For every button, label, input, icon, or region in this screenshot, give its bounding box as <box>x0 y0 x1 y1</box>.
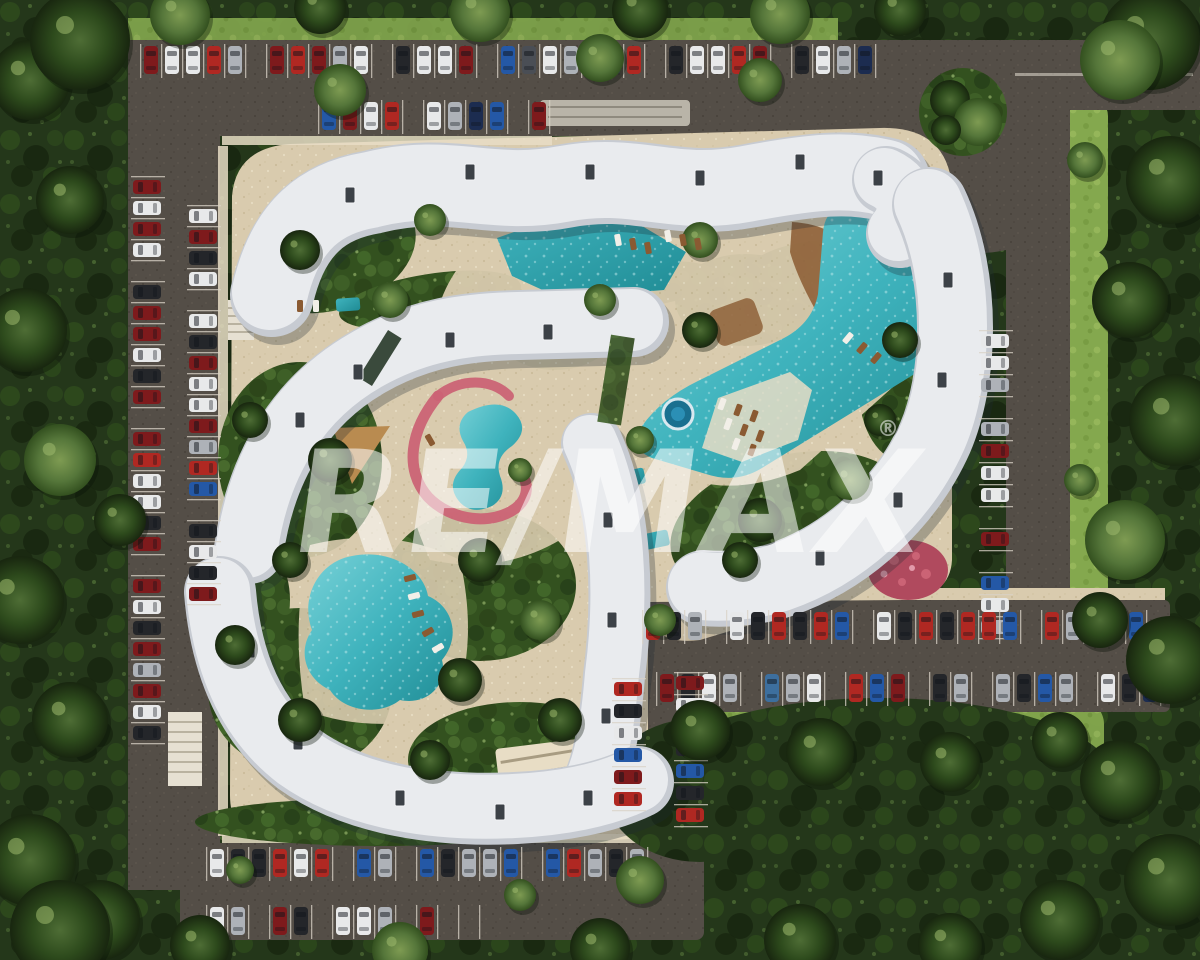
stall-line <box>131 638 165 639</box>
car-rear-window <box>879 632 889 636</box>
car-windshield <box>138 602 143 612</box>
car-rear-window <box>209 232 213 242</box>
car-windshield <box>317 854 327 859</box>
roof-skylight <box>495 804 505 820</box>
stall-line <box>416 847 417 881</box>
tree <box>94 494 146 546</box>
stall-line <box>131 491 165 492</box>
car-windshield <box>851 679 861 684</box>
stall-line <box>612 788 646 789</box>
car-windshield <box>963 617 973 622</box>
stall-line <box>434 44 435 78</box>
stall-line <box>740 672 741 706</box>
roof-skylight <box>873 170 883 186</box>
car-windshield <box>167 51 177 56</box>
car-windshield <box>816 617 826 622</box>
car-rear-window <box>634 794 638 804</box>
car-windshield <box>681 766 686 776</box>
stall-line <box>187 247 221 248</box>
roof-skylight <box>543 324 553 340</box>
stall-line <box>187 478 221 479</box>
car-windshield <box>338 912 348 917</box>
car-windshield <box>681 678 686 688</box>
car-windshield <box>398 51 408 56</box>
car-windshield <box>138 371 143 381</box>
car-rear-window <box>696 766 700 776</box>
stall-line <box>381 100 382 134</box>
stall-line <box>131 680 165 681</box>
stall-line <box>761 672 762 706</box>
stall-line <box>187 436 221 437</box>
stall-line <box>833 44 834 78</box>
tree-highlight <box>804 736 816 748</box>
car-windshield <box>690 617 700 622</box>
west-stairs <box>168 712 202 786</box>
roundabout-island <box>919 68 1007 156</box>
tree <box>1064 464 1096 496</box>
car-rear-window <box>998 694 1008 698</box>
car-windshield <box>732 617 742 622</box>
car-rear-window <box>809 694 819 698</box>
car-rear-window <box>1040 694 1050 698</box>
car-windshield <box>293 51 303 56</box>
car-windshield <box>429 107 439 112</box>
tree-highlight <box>592 292 598 298</box>
car-rear-window <box>935 694 945 698</box>
tree <box>410 740 450 780</box>
car-rear-window <box>629 66 639 70</box>
car-windshield <box>380 912 390 917</box>
car-rear-window <box>569 869 579 873</box>
car-rear-window <box>696 678 700 688</box>
site-plan-svg: RE/MAX ® <box>0 0 1200 960</box>
car-windshield <box>194 316 199 326</box>
stall-line <box>521 847 522 881</box>
tree-highlight <box>43 443 56 456</box>
car-windshield <box>296 912 306 917</box>
car-rear-window <box>1001 446 1005 456</box>
stall-line <box>187 226 221 227</box>
car-rear-window <box>767 694 777 698</box>
stall-line <box>1034 672 1035 706</box>
car-rear-window <box>153 497 157 507</box>
car-rear-window <box>942 632 952 636</box>
stall-line <box>187 205 221 206</box>
car-windshield <box>986 358 991 368</box>
roof-skylight <box>585 164 595 180</box>
car-windshield <box>692 51 702 56</box>
car-rear-window <box>956 694 966 698</box>
car-windshield <box>900 617 910 622</box>
car-windshield <box>818 51 828 56</box>
car-rear-window <box>275 869 285 873</box>
car-windshield <box>956 679 966 684</box>
roof-skylight <box>583 790 593 806</box>
stall-line <box>458 905 459 939</box>
car-rear-window <box>153 581 157 591</box>
car-windshield <box>986 468 991 478</box>
car-rear-window <box>471 122 481 126</box>
stall-line <box>1097 672 1098 706</box>
stall-line <box>161 44 162 78</box>
roof-skylight <box>345 187 355 203</box>
car-rear-window <box>359 927 369 931</box>
car-windshield <box>440 51 450 56</box>
car-rear-window <box>209 484 213 494</box>
stall-line <box>269 847 270 881</box>
stall-line <box>131 344 165 345</box>
car-rear-window <box>506 869 516 873</box>
tree-highlight <box>56 16 74 34</box>
car-windshield <box>629 51 639 56</box>
roof-skylight <box>695 170 705 186</box>
car-rear-window <box>419 66 429 70</box>
stall-line <box>245 44 246 78</box>
car-windshield <box>296 854 306 859</box>
car-rear-window <box>296 869 306 873</box>
stall-line <box>979 484 1013 485</box>
car-windshield <box>422 912 432 917</box>
tree-highlight <box>749 69 757 77</box>
stall-line <box>979 352 1013 353</box>
tree-highlight <box>1112 282 1126 296</box>
car-windshield <box>725 679 735 684</box>
stall-line <box>423 100 424 134</box>
car-rear-window <box>366 122 376 126</box>
car-windshield <box>212 912 222 917</box>
tree <box>1080 740 1160 820</box>
tree-highlight <box>290 240 297 247</box>
walkway-line <box>548 106 682 108</box>
tree-highlight <box>588 46 597 55</box>
tree-highlight <box>1087 607 1097 617</box>
sun-lounger <box>313 300 319 312</box>
car-windshield <box>506 854 516 859</box>
car-windshield <box>809 679 819 684</box>
car-rear-window <box>464 869 474 873</box>
car-windshield <box>986 336 991 346</box>
car-windshield <box>359 854 369 859</box>
stall-line <box>131 470 165 471</box>
stall-line <box>140 44 141 78</box>
tree <box>226 856 254 884</box>
stall-line <box>549 100 550 134</box>
car-rear-window <box>963 632 973 636</box>
stall-line <box>674 804 708 805</box>
car-windshield <box>138 350 143 360</box>
car-windshield <box>1019 679 1029 684</box>
north-walkway <box>540 100 690 126</box>
stall-line <box>1076 672 1077 706</box>
roof-skylight <box>395 790 405 806</box>
car-windshield <box>797 51 807 56</box>
car-rear-window <box>209 526 213 536</box>
car-rear-window <box>634 772 638 782</box>
car-rear-window <box>209 337 213 347</box>
car-rear-window <box>461 66 471 70</box>
car-windshield <box>450 107 460 112</box>
car-windshield <box>314 51 324 56</box>
stall-line <box>187 520 221 521</box>
car-rear-window <box>1001 468 1005 478</box>
stall-line <box>131 407 165 408</box>
car-windshield <box>194 421 199 431</box>
car-rear-window <box>548 869 558 873</box>
stall-line <box>1062 610 1063 644</box>
stall-line <box>1020 610 1021 644</box>
tree <box>682 312 718 348</box>
car-rear-window <box>422 927 432 931</box>
car-rear-window <box>725 694 735 698</box>
car-rear-window <box>153 644 157 654</box>
car-rear-window <box>345 122 355 126</box>
car-rear-window <box>713 66 723 70</box>
stall-line <box>187 604 221 605</box>
stall-line <box>187 310 221 311</box>
stall-line <box>560 44 561 78</box>
car-windshield <box>194 442 199 452</box>
car-windshield <box>194 253 199 263</box>
stall-line <box>875 44 876 78</box>
car-rear-window <box>153 392 157 402</box>
tree-highlight <box>5 310 20 325</box>
car-rear-window <box>1001 578 1005 588</box>
car-rear-window <box>696 788 700 798</box>
car-rear-window <box>690 632 700 636</box>
car-rear-window <box>524 66 534 70</box>
roof-skylight <box>295 412 305 428</box>
car-rear-window <box>443 869 453 873</box>
stall-line <box>497 44 498 78</box>
roof-skylight <box>601 708 611 724</box>
car-windshield <box>872 679 882 684</box>
stall-line <box>437 905 438 939</box>
car-windshield <box>569 854 579 859</box>
tree-highlight <box>1101 41 1115 55</box>
tree-highlight <box>549 709 557 717</box>
car-windshield <box>194 589 199 599</box>
tree-highlight <box>225 635 232 642</box>
car-rear-window <box>153 728 157 738</box>
stall-line <box>353 905 354 939</box>
car-rear-window <box>590 869 600 873</box>
car-windshield <box>1103 679 1113 684</box>
stall-line <box>612 810 646 811</box>
stall-line <box>929 672 930 706</box>
car-windshield <box>704 679 714 684</box>
tree-highlight <box>1106 521 1120 535</box>
tree-highlight <box>328 78 337 87</box>
car-windshield <box>138 245 143 255</box>
stall-line <box>266 44 267 78</box>
stall-line <box>131 323 165 324</box>
stall-line <box>612 766 646 767</box>
tree-highlight <box>1047 727 1057 737</box>
car-rear-window <box>1019 694 1029 698</box>
car-windshield <box>146 51 156 56</box>
tree-highlight <box>387 937 397 947</box>
car-rear-window <box>153 287 157 297</box>
car-rear-window <box>485 869 495 873</box>
stall-line <box>479 905 480 939</box>
stall-line <box>791 44 792 78</box>
car-windshield <box>921 617 931 622</box>
sun-lounger <box>297 300 303 312</box>
stall-line <box>854 44 855 78</box>
car-windshield <box>879 617 889 622</box>
stall-line <box>612 700 646 701</box>
stall-line <box>584 847 585 881</box>
car-windshield <box>254 854 264 859</box>
tree-highlight <box>1148 858 1165 875</box>
stall-line <box>332 847 333 881</box>
car-rear-window <box>851 694 861 698</box>
tree-highlight <box>628 868 637 877</box>
car-windshield <box>380 854 390 859</box>
car-rear-window <box>422 869 432 873</box>
stall-line <box>187 562 221 563</box>
car-windshield <box>1131 617 1141 622</box>
stall-line <box>747 610 748 644</box>
stall-line <box>782 672 783 706</box>
roof-skylight <box>607 612 617 628</box>
car-rear-window <box>837 632 847 636</box>
car-windshield <box>194 463 199 473</box>
stall-line <box>908 672 909 706</box>
stall-line <box>563 847 564 881</box>
car-rear-window <box>209 589 213 599</box>
car-windshield <box>986 534 991 544</box>
stall-line <box>131 197 165 198</box>
stall-line <box>507 100 508 134</box>
car-rear-window <box>440 66 450 70</box>
car-windshield <box>795 617 805 622</box>
car-windshield <box>419 51 429 56</box>
car-rear-window <box>797 66 807 70</box>
car-windshield <box>366 107 376 112</box>
stall-line <box>187 331 221 332</box>
car-windshield <box>984 617 994 622</box>
stall-line <box>719 672 720 706</box>
car-rear-window <box>545 66 555 70</box>
car-rear-window <box>209 66 219 70</box>
tree-highlight <box>766 0 777 10</box>
watermark-text: RE/MAX <box>282 421 936 586</box>
stall-line <box>187 289 221 290</box>
car-rear-window <box>153 245 157 255</box>
tree-highlight <box>783 923 796 936</box>
car-rear-window <box>634 728 638 738</box>
car-rear-window <box>634 750 638 760</box>
stall-line <box>686 44 687 78</box>
car-windshield <box>788 679 798 684</box>
car-windshield <box>138 476 143 486</box>
car-windshield <box>671 51 681 56</box>
stall-line <box>187 373 221 374</box>
car-windshield <box>359 912 369 917</box>
tree-highlight <box>1076 151 1082 157</box>
car-rear-window <box>153 476 157 486</box>
remax-watermark: RE/MAX ® <box>282 417 936 586</box>
stall-line <box>1118 672 1119 706</box>
tree <box>1092 262 1168 338</box>
tree <box>1067 142 1103 178</box>
stall-line <box>665 44 666 78</box>
tree-highlight <box>586 934 597 945</box>
tree <box>584 284 616 316</box>
stall-line <box>131 239 165 240</box>
walkway-line <box>548 116 682 118</box>
stall-line <box>674 782 708 783</box>
stall-line <box>979 440 1013 441</box>
stall-line <box>131 554 165 555</box>
car-rear-window <box>1047 632 1057 636</box>
car-rear-window <box>795 632 805 636</box>
car-windshield <box>548 854 558 859</box>
car-windshield <box>138 434 143 444</box>
car-rear-window <box>1001 490 1005 500</box>
car-rear-window <box>398 66 408 70</box>
car-rear-window <box>153 539 157 549</box>
stall-line <box>642 610 643 644</box>
tree-highlight <box>935 930 947 942</box>
tree <box>1020 880 1100 960</box>
stall-line <box>803 672 804 706</box>
car-windshield <box>935 679 945 684</box>
car-windshield <box>942 617 952 622</box>
watermark-registered-mark: ® <box>877 417 899 442</box>
car-rear-window <box>275 927 285 931</box>
car-rear-window <box>209 379 213 389</box>
roof-skylight <box>353 364 363 380</box>
tree-highlight <box>36 906 54 924</box>
car-rear-window <box>872 694 882 698</box>
car-rear-window <box>153 434 157 444</box>
car-windshield <box>138 455 143 465</box>
car-windshield <box>619 750 624 760</box>
car-windshield <box>194 232 199 242</box>
tree-highlight <box>652 612 658 618</box>
stall-line <box>979 330 1013 331</box>
stall-line <box>131 596 165 597</box>
stall-line <box>979 572 1013 573</box>
tree <box>504 879 536 911</box>
stall-line <box>131 428 165 429</box>
stall-line <box>612 744 646 745</box>
car-windshield <box>503 51 513 56</box>
roof-skylight <box>943 272 953 288</box>
car-windshield <box>619 706 624 716</box>
stall-line <box>656 672 657 706</box>
stall-line <box>824 672 825 706</box>
stall-line <box>957 610 958 644</box>
stall-line <box>831 610 832 644</box>
stall-line <box>402 100 403 134</box>
car-windshield <box>619 794 624 804</box>
stall-line <box>374 905 375 939</box>
car-windshield <box>272 51 282 56</box>
stall-line <box>979 418 1013 419</box>
car-windshield <box>138 308 143 318</box>
tree <box>882 322 918 358</box>
tree-highlight <box>1149 639 1165 655</box>
tree-highlight <box>686 716 697 727</box>
tree <box>538 698 582 742</box>
car-windshield <box>138 728 143 738</box>
stall-line <box>486 100 487 134</box>
car-windshield <box>233 912 243 917</box>
road-east <box>1006 110 1070 644</box>
